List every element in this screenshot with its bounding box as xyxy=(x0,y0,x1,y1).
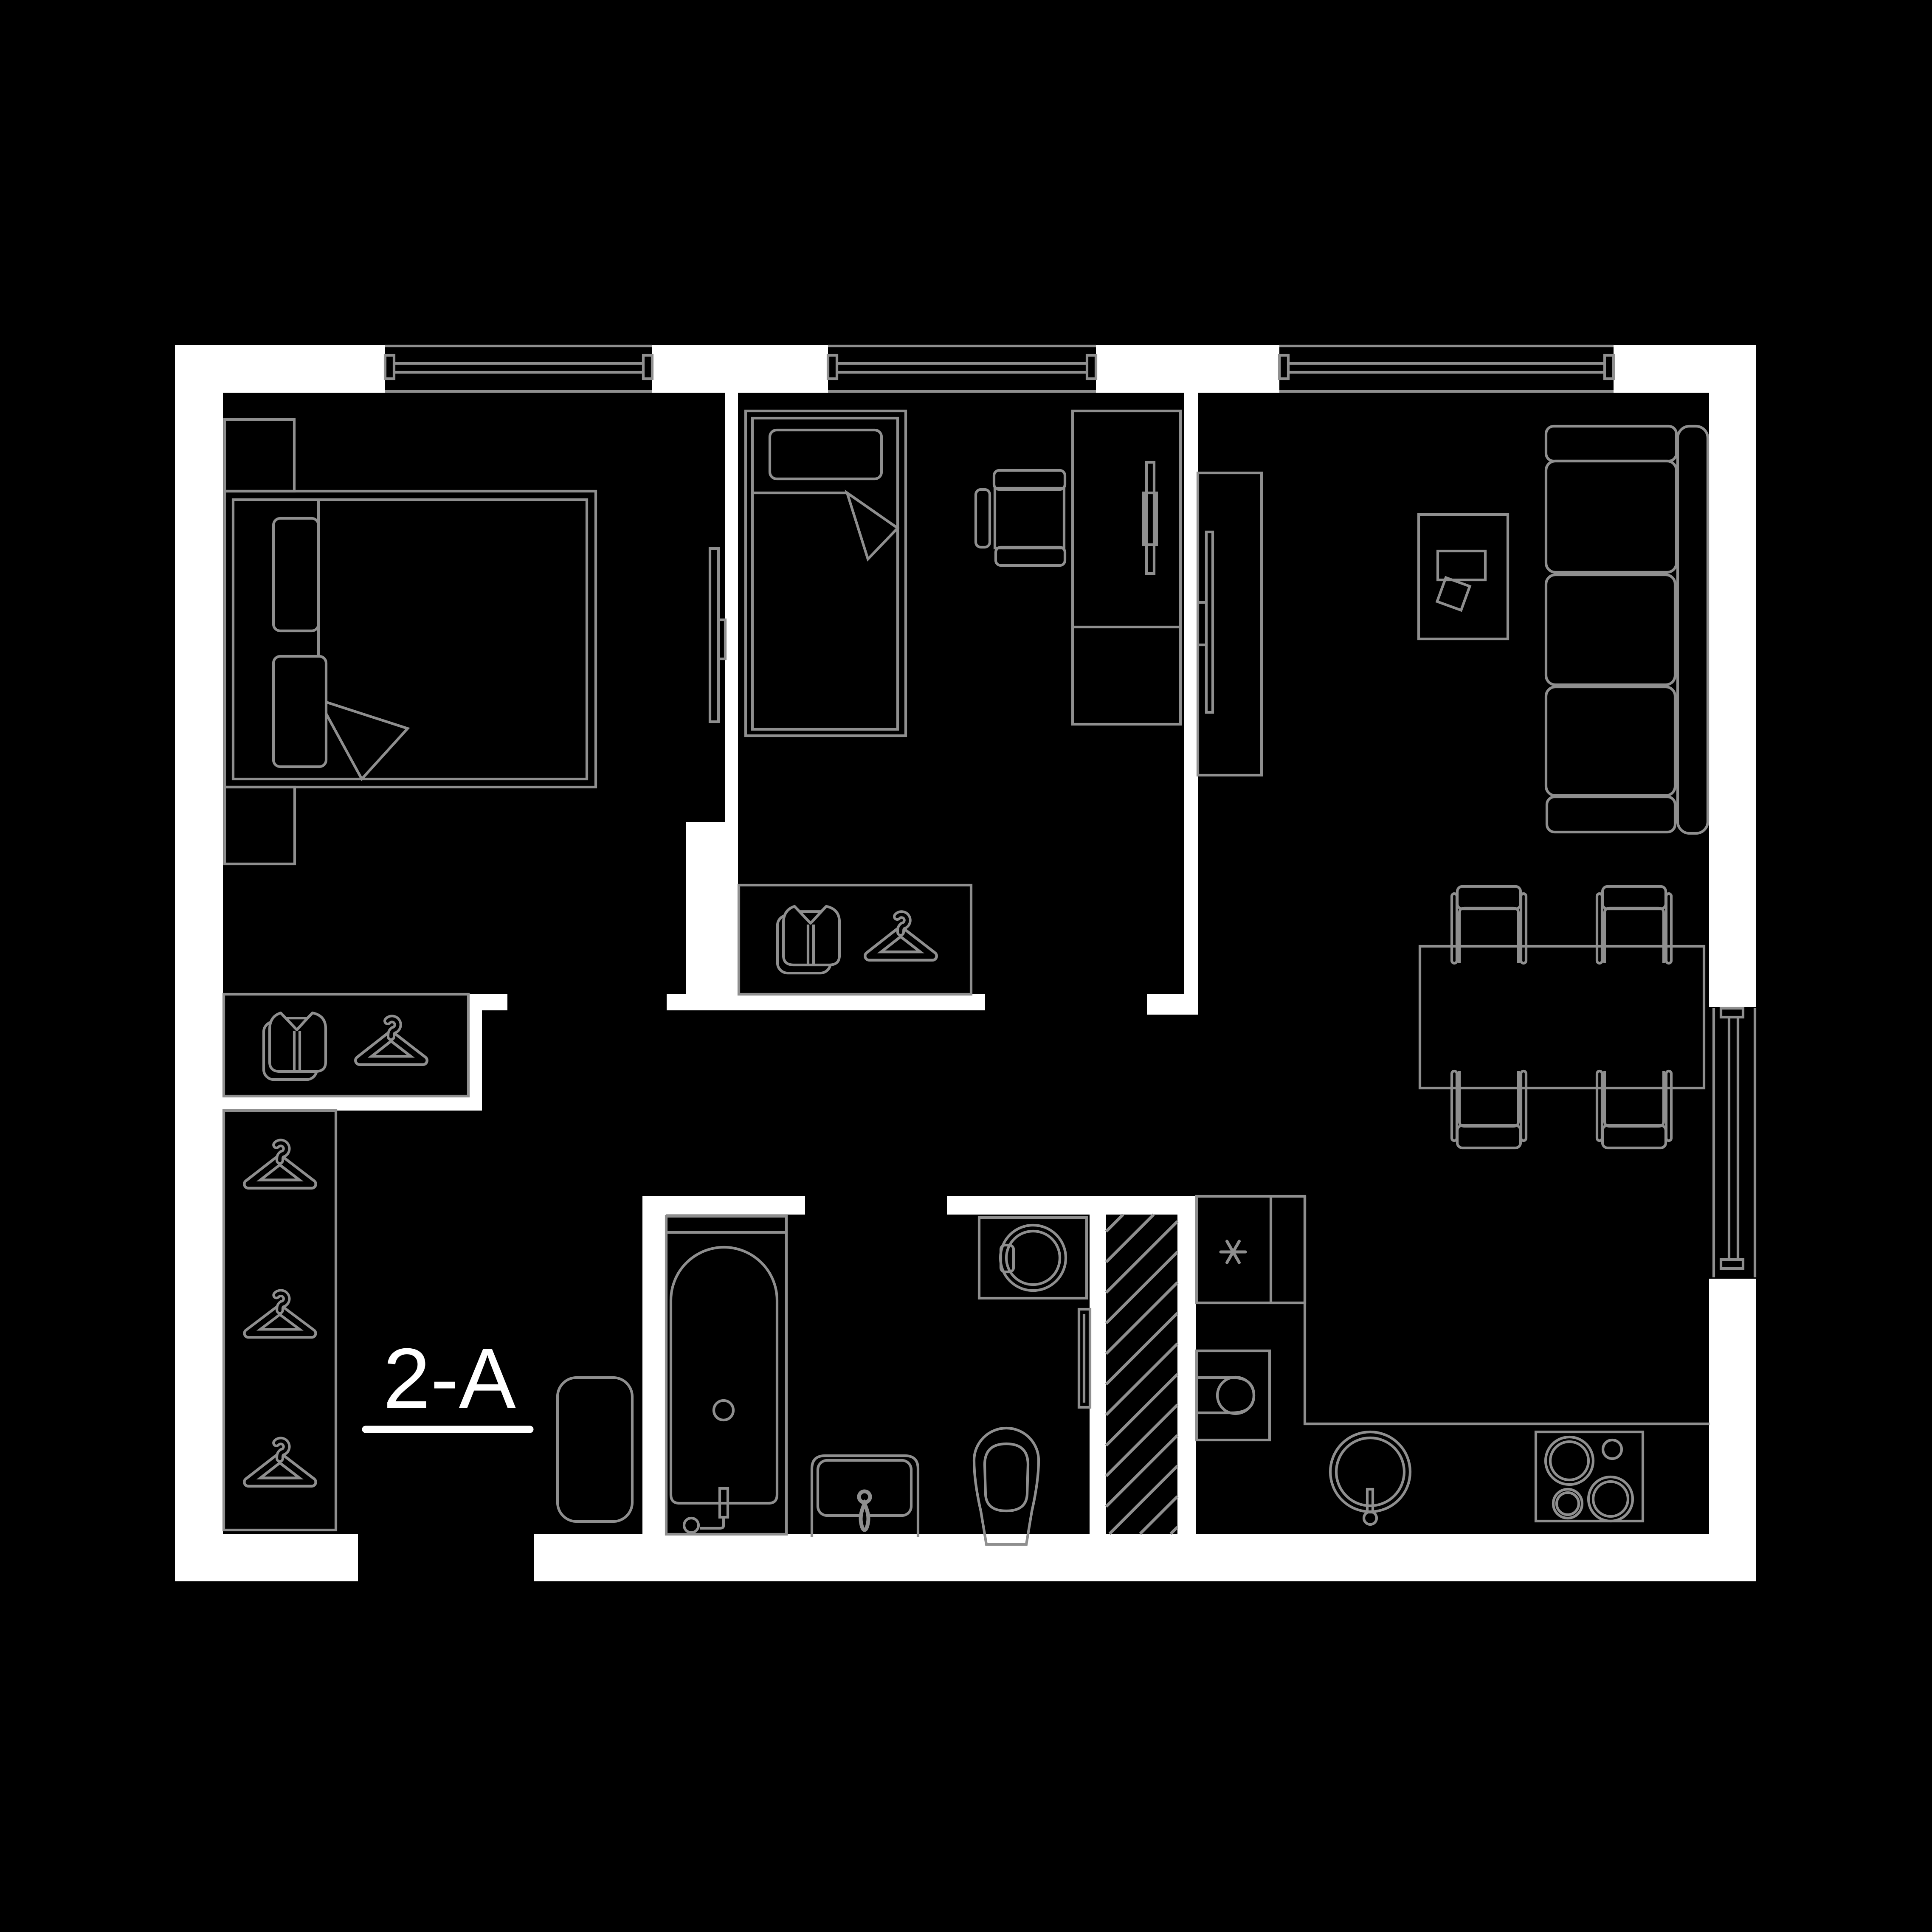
svg-text:2-A: 2-A xyxy=(383,1330,516,1426)
